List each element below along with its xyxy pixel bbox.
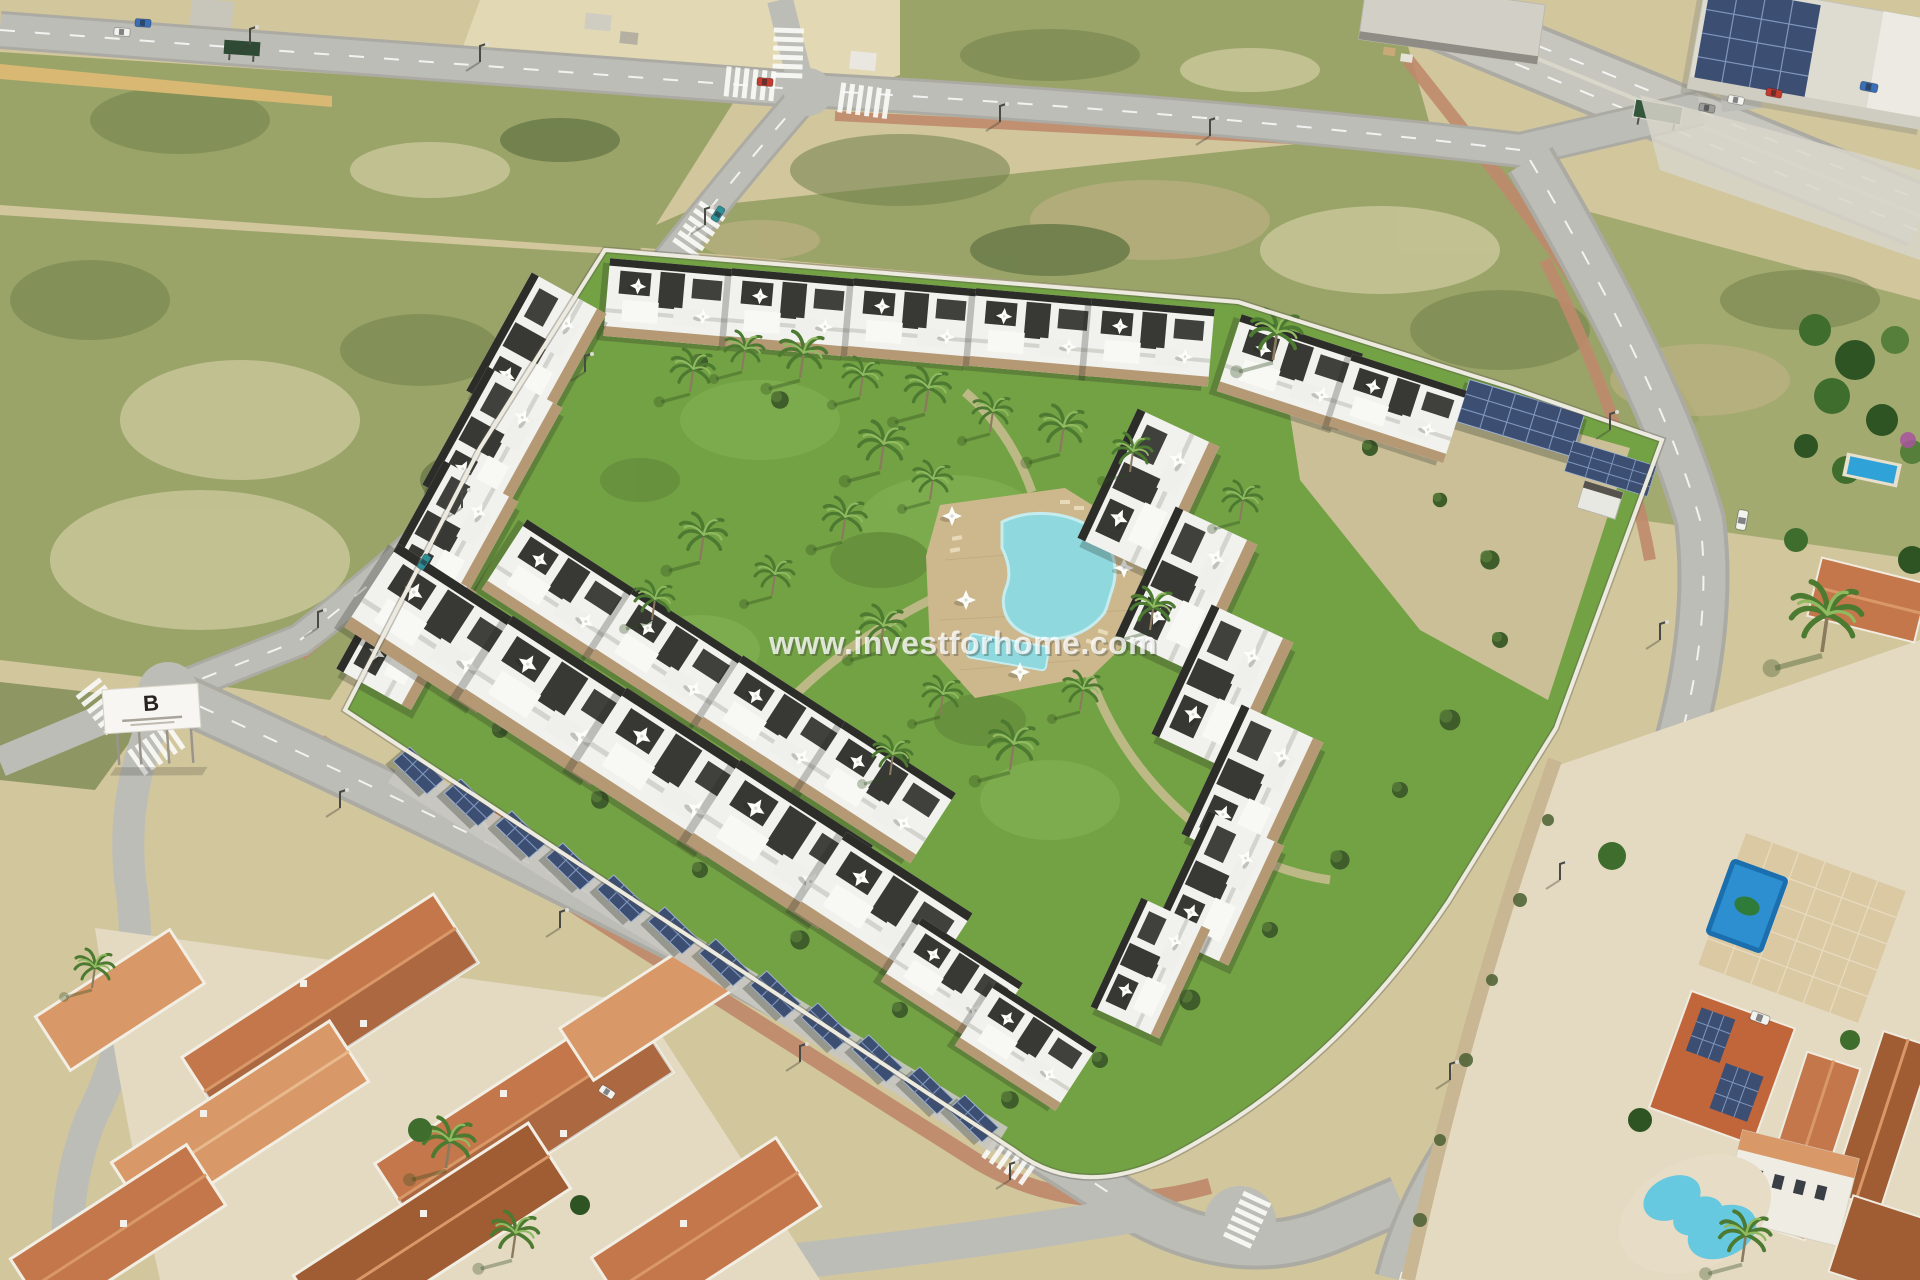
bougainvillea — [1900, 432, 1916, 448]
car-white — [114, 27, 131, 36]
aerial-render-view: B www.investforhome.com www.investforhom… — [0, 0, 1920, 1280]
watermark-text: www.investforhome.com — [768, 625, 1157, 661]
aerial-photo: B www.investforhome.com www.investforhom… — [0, 0, 1920, 1280]
car-blue — [135, 18, 152, 27]
watermark: www.investforhome.com www.investforhome.… — [768, 625, 1159, 663]
billboard-logo: B — [142, 690, 160, 716]
car-red — [757, 77, 774, 86]
